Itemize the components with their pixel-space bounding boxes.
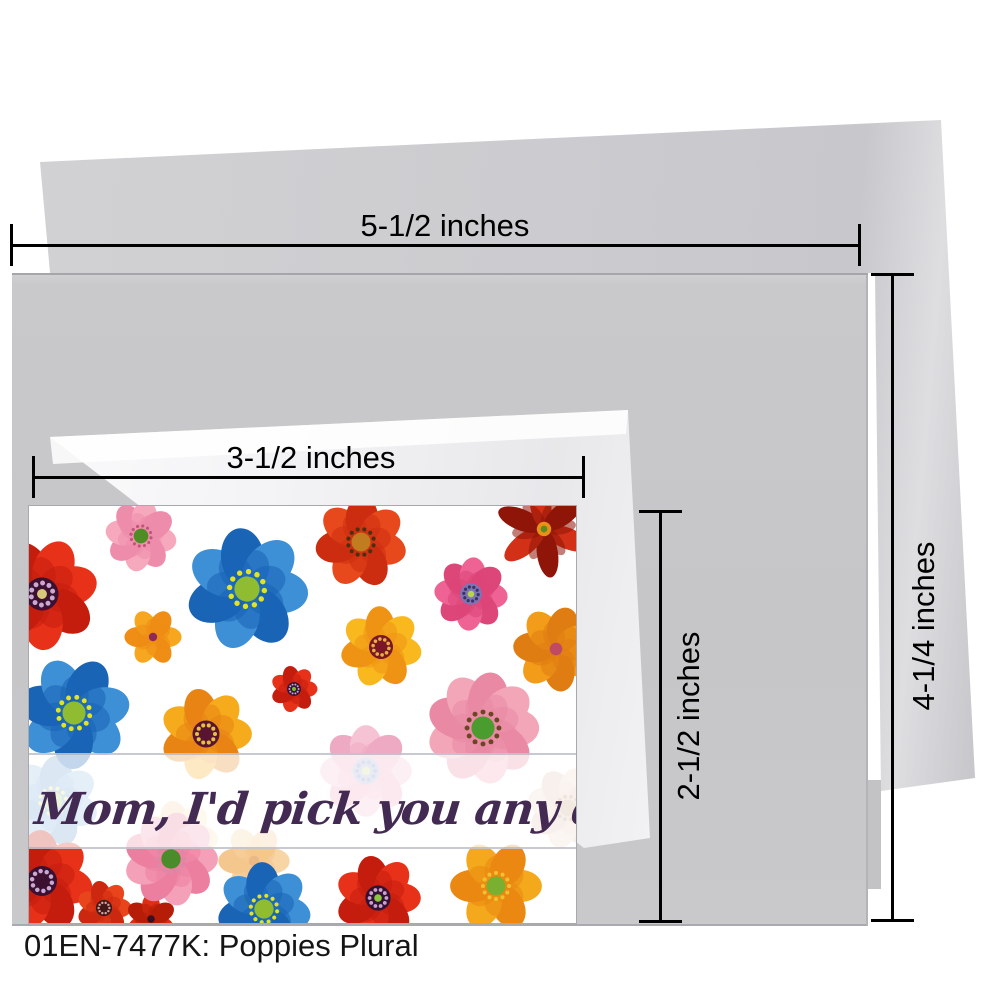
- dim-card-width-tick-right: [582, 456, 585, 498]
- dim-envelope-height-line: [891, 273, 894, 922]
- card-message: Mom, I'd pick you any day.: [32, 784, 572, 836]
- magenta-poppy: [431, 554, 511, 634]
- red-poppy-top-left: [29, 522, 111, 666]
- dim-card-width-tick-left: [32, 456, 35, 498]
- dim-card-height-tick-top: [639, 510, 682, 513]
- dim-envelope-height-label: 4-1/4 inches: [907, 542, 941, 711]
- red-poppy-bottom: [333, 853, 421, 923]
- blue-poppy-large: [177, 519, 313, 658]
- dim-envelope-width-label: 5-1/2 inches: [300, 209, 590, 243]
- golden-poppy: [331, 597, 428, 696]
- dim-envelope-width-tick-left: [10, 224, 13, 266]
- poppies-artwork: [29, 506, 576, 923]
- dim-envelope-height-tick-top: [871, 273, 914, 276]
- pink-poppy-top: [100, 506, 183, 577]
- dim-card-width-label: 3-1/2 inches: [166, 441, 456, 475]
- dim-envelope-width-tick-right: [858, 224, 861, 266]
- dim-envelope-width-line: [10, 244, 861, 247]
- dim-card-height-label: 2-1/2 inches: [672, 632, 706, 801]
- orange-poppy-small: [124, 607, 181, 667]
- product-caption: 01EN-7477K: Poppies Plural: [24, 928, 419, 964]
- product-mockup: Mom, I'd pick you any day. 5-1/2 inches …: [0, 0, 984, 984]
- dim-card-height-tick-bottom: [639, 920, 682, 923]
- dim-envelope-height-tick-bottom: [871, 919, 914, 922]
- dim-card-height-line: [659, 510, 662, 923]
- outer-envelope-edge: [867, 780, 881, 889]
- orange-poppy-bottom: [450, 838, 542, 923]
- greeting-card: Mom, I'd pick you any day.: [28, 505, 577, 924]
- red-poppy-small: [269, 664, 317, 713]
- dim-card-width-line: [32, 476, 585, 479]
- red-orange-poppy-top: [302, 506, 418, 601]
